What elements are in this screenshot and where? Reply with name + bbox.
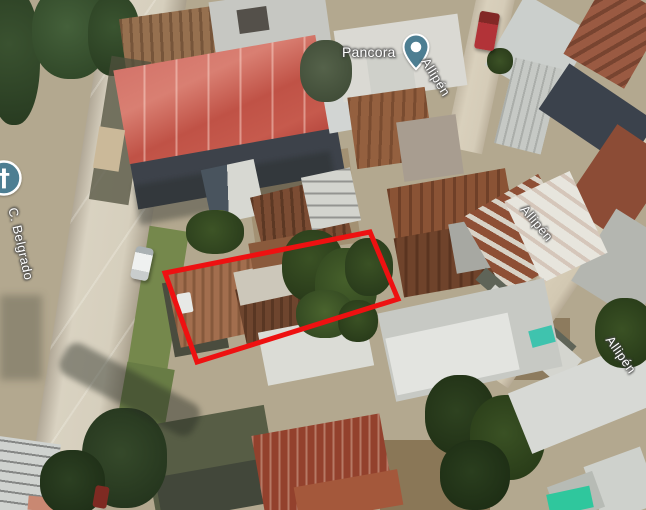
property-outline-overlay <box>0 0 646 510</box>
cross-icon: † <box>0 164 10 192</box>
church-icon: † <box>0 159 23 197</box>
pin-center-dot <box>410 42 421 53</box>
satellite-map[interactable]: † Pancora C. Belgrado Allipén Allipén Al… <box>0 0 646 510</box>
poi-pancora-label[interactable]: Pancora <box>342 44 396 60</box>
property-outline-polygon <box>165 232 398 362</box>
poi-pancora[interactable]: Pancora <box>342 33 431 71</box>
church-poi[interactable]: † <box>0 159 23 197</box>
